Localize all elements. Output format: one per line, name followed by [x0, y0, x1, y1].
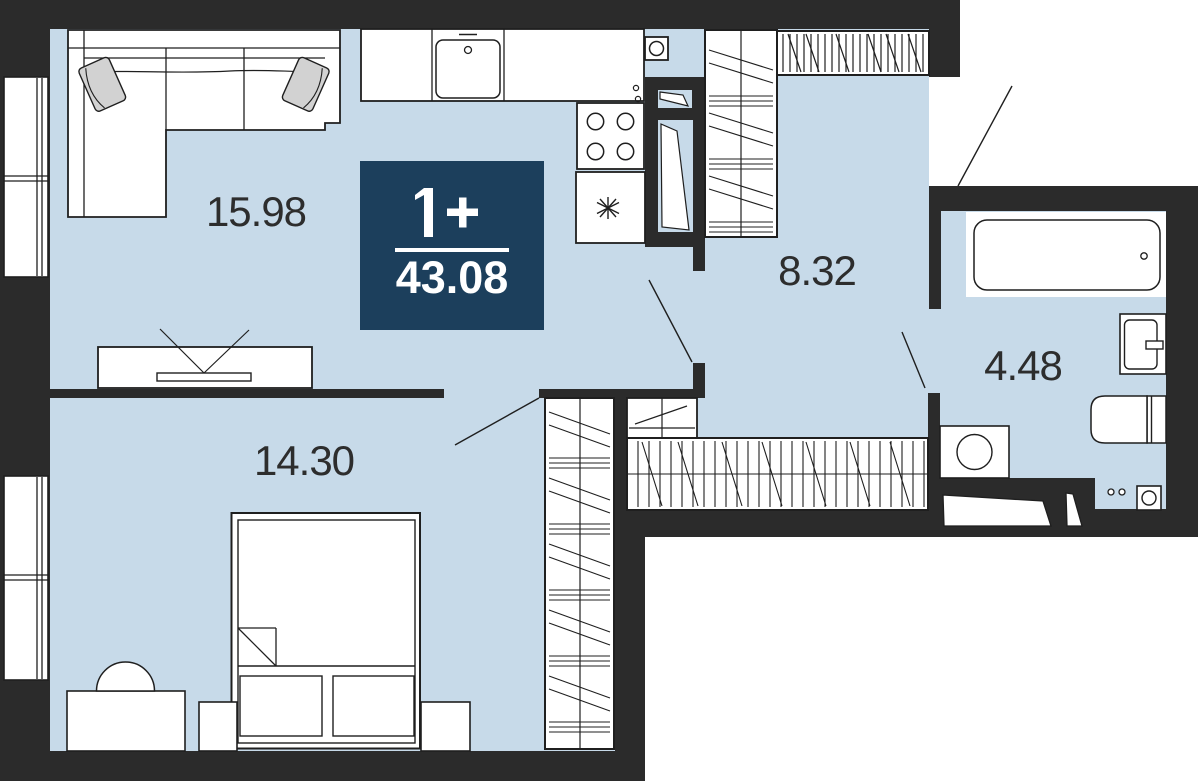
svg-text:43.08: 43.08 — [396, 252, 509, 303]
svg-text:4.48: 4.48 — [984, 342, 1062, 389]
svg-text:14.30: 14.30 — [254, 437, 354, 484]
svg-text:15.98: 15.98 — [206, 188, 306, 235]
svg-text:8.32: 8.32 — [778, 247, 856, 294]
